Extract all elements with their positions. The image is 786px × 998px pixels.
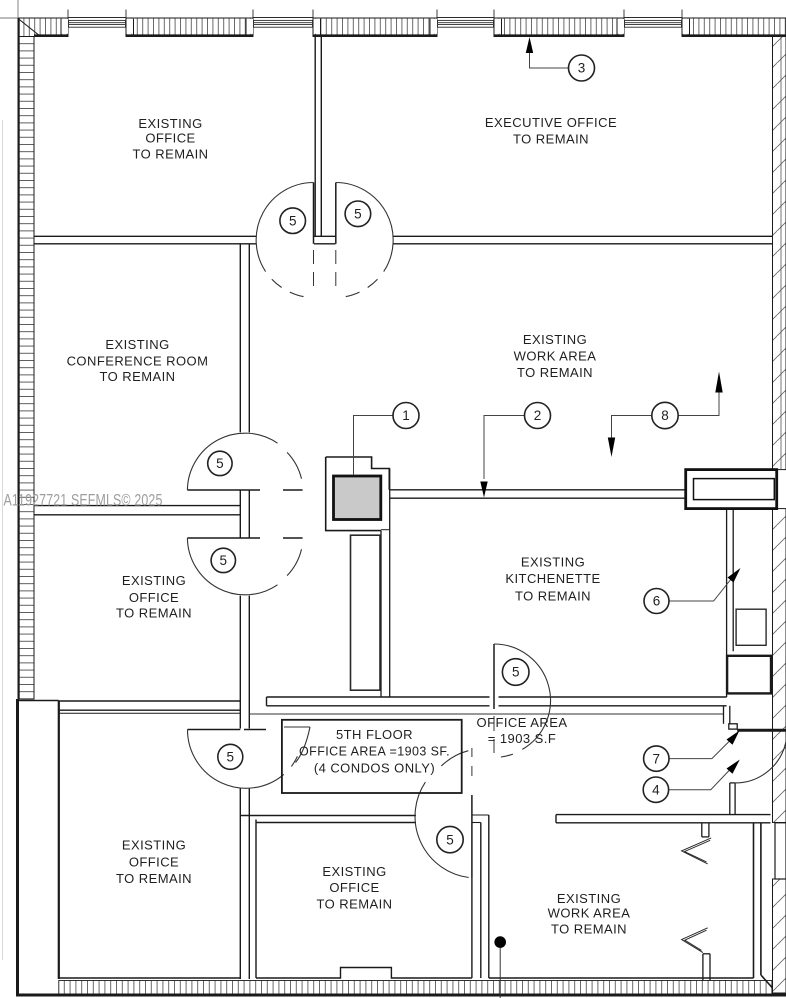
svg-text:EXISTING: EXISTING [322, 864, 386, 879]
svg-text:TO REMAIN: TO REMAIN [513, 132, 589, 147]
svg-text:OFFICE AREA: OFFICE AREA [477, 715, 568, 730]
svg-text:5: 5 [354, 207, 362, 222]
svg-text:TO REMAIN: TO REMAIN [316, 896, 392, 911]
svg-text:TO REMAIN: TO REMAIN [99, 369, 175, 384]
svg-text:1: 1 [402, 408, 410, 423]
svg-text:6: 6 [653, 594, 661, 609]
svg-text:TO REMAIN: TO REMAIN [517, 365, 593, 380]
svg-text:5TH FLOOR: 5TH FLOOR [336, 727, 413, 742]
svg-text:2: 2 [534, 408, 542, 423]
svg-text:EXISTING: EXISTING [122, 838, 186, 853]
svg-text:EXISTING: EXISTING [557, 891, 621, 906]
svg-text:OFFICE AREA =1903 SF.: OFFICE AREA =1903 SF. [299, 744, 450, 759]
svg-text:KITCHENETTE: KITCHENETTE [505, 571, 600, 586]
svg-text:5: 5 [216, 456, 224, 471]
svg-text:OFFICE: OFFICE [129, 854, 179, 869]
svg-text:EXISTING: EXISTING [122, 573, 186, 588]
svg-text:TO REMAIN: TO REMAIN [132, 146, 208, 161]
svg-text:EXISTING: EXISTING [521, 555, 585, 570]
svg-text:CONFERENCE ROOM: CONFERENCE ROOM [67, 353, 209, 368]
svg-text:WORK AREA: WORK AREA [548, 906, 631, 921]
svg-text:TO REMAIN: TO REMAIN [551, 922, 627, 937]
svg-text:A11927721 SEFMLS© 2025: A11927721 SEFMLS© 2025 [4, 492, 163, 510]
svg-text:EXISTING: EXISTING [105, 337, 169, 352]
svg-text:5: 5 [512, 665, 520, 680]
svg-text:8: 8 [661, 408, 669, 423]
svg-text:TO REMAIN: TO REMAIN [116, 606, 192, 621]
svg-text:5: 5 [446, 832, 454, 847]
svg-text:3: 3 [578, 61, 586, 76]
svg-text:WORK AREA: WORK AREA [514, 349, 597, 364]
svg-text:= 1903 S.F: = 1903 S.F [488, 731, 556, 746]
svg-text:5: 5 [289, 213, 297, 228]
svg-text:(4 CONDOS ONLY): (4 CONDOS ONLY) [314, 760, 435, 775]
svg-text:OFFICE: OFFICE [145, 131, 195, 146]
svg-text:OFFICE: OFFICE [329, 880, 379, 895]
svg-text:TO REMAIN: TO REMAIN [515, 588, 591, 603]
svg-text:EXISTING: EXISTING [138, 116, 202, 131]
svg-text:7: 7 [653, 751, 661, 766]
svg-text:5: 5 [220, 553, 228, 568]
svg-text:OFFICE: OFFICE [129, 590, 179, 605]
svg-text:4: 4 [652, 782, 660, 797]
svg-text:EXECUTIVE OFFICE: EXECUTIVE OFFICE [485, 115, 617, 130]
svg-text:EXISTING: EXISTING [523, 332, 587, 347]
svg-text:5: 5 [227, 750, 235, 765]
svg-text:TO REMAIN: TO REMAIN [116, 871, 192, 886]
